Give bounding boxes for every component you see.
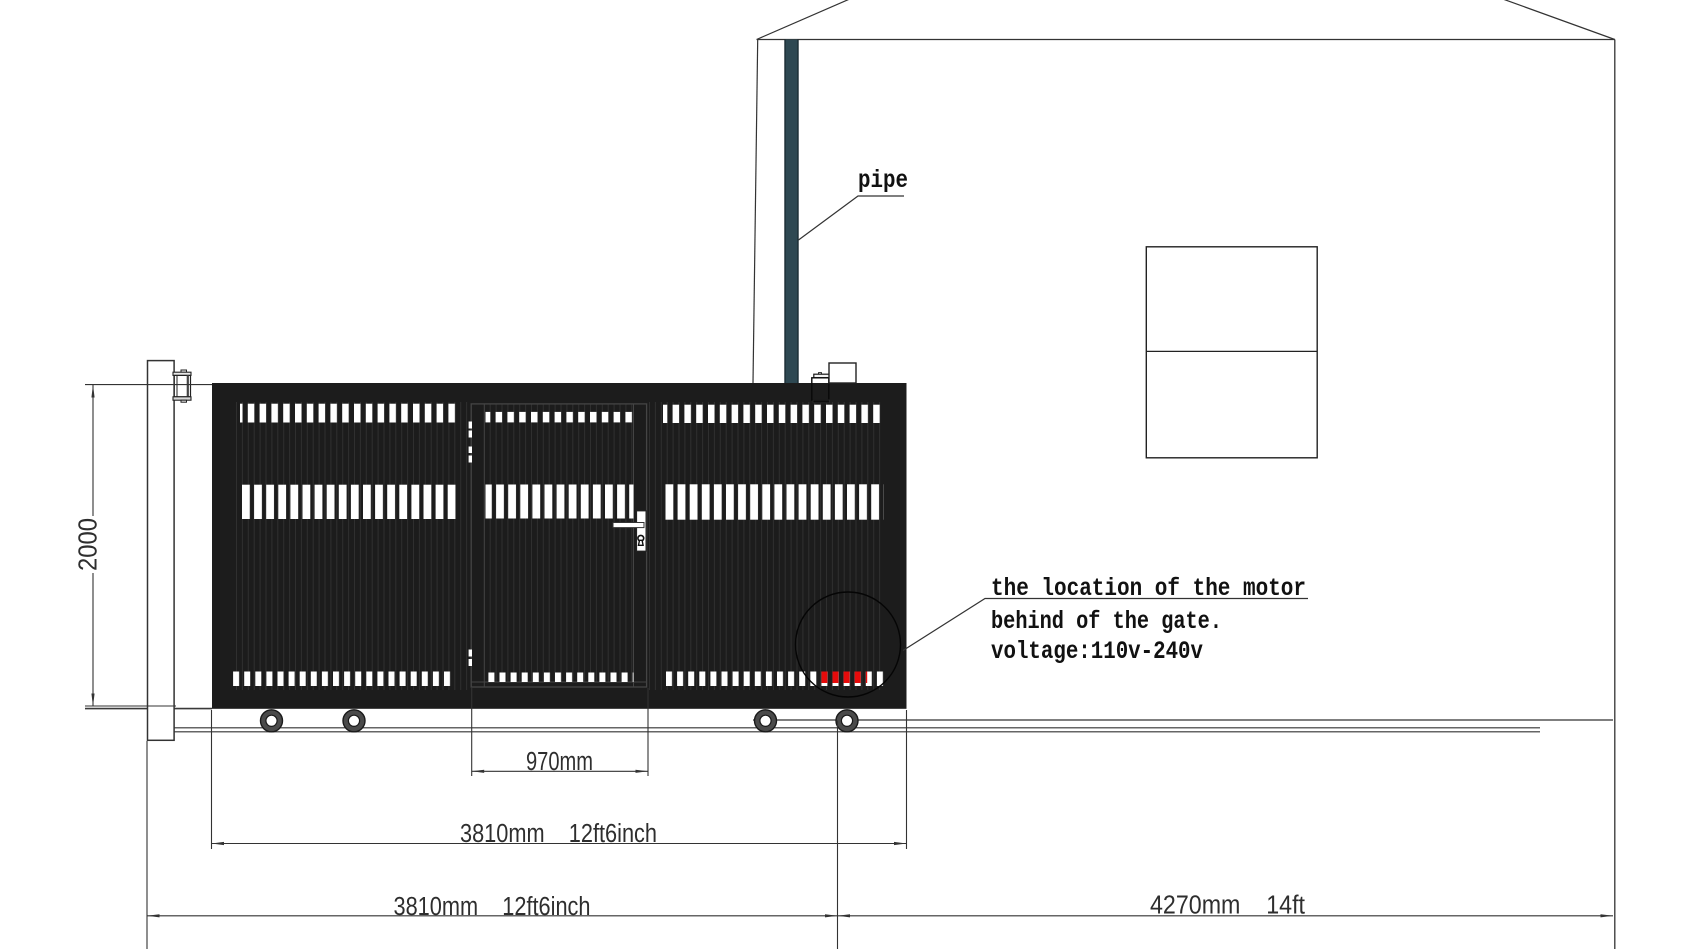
svg-text:the location of the motor: the location of the motor xyxy=(991,574,1306,603)
svg-text:2000: 2000 xyxy=(75,518,103,571)
svg-text:voltage:110v-240v: voltage:110v-240v xyxy=(991,637,1203,666)
svg-text:pipe: pipe xyxy=(858,166,908,195)
svg-text:4270mm 14ft: 4270mm 14ft xyxy=(1150,892,1305,920)
svg-text:3810mm 12ft6inch: 3810mm 12ft6inch xyxy=(394,893,591,921)
svg-text:behind of the gate.: behind of the gate. xyxy=(991,607,1222,636)
svg-text:970mm: 970mm xyxy=(526,748,593,776)
svg-text:3810mm 12ft6inch: 3810mm 12ft6inch xyxy=(460,820,657,848)
